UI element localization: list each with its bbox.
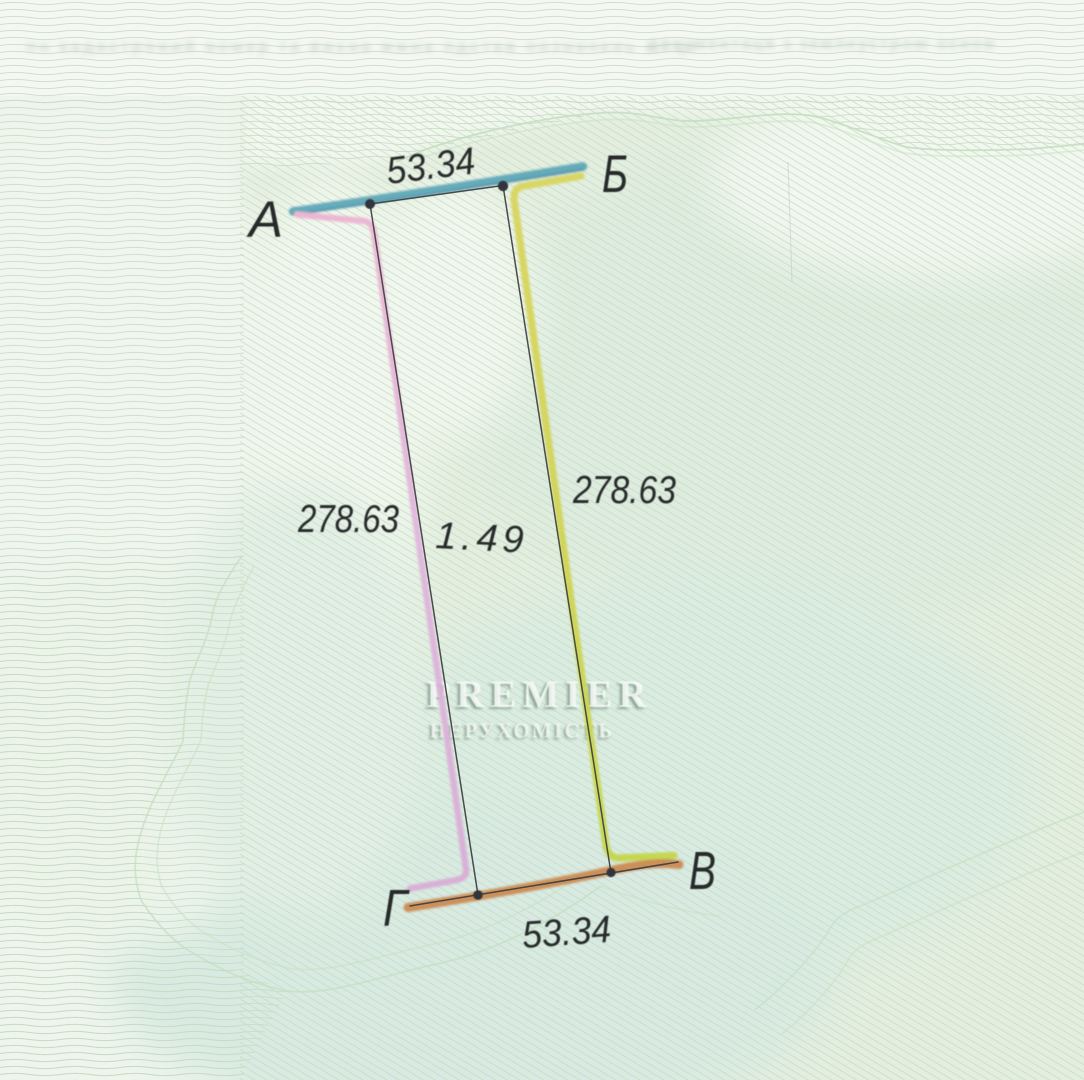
svg-text:278.63: 278.63 [297, 498, 399, 541]
svg-text:Г: Г [383, 880, 410, 938]
svg-text:документаця з землеустрою осно: документаця з землеустрою основ [648, 35, 996, 53]
svg-text:А: А [246, 191, 283, 248]
svg-text:1.49: 1.49 [435, 515, 525, 562]
svg-text:пн кадастровий номер та вихна: пн кадастровий номер та вихна мжна пдста… [26, 38, 699, 56]
svg-text:PREMIER: PREMIER [426, 673, 652, 716]
svg-text:53.34: 53.34 [521, 909, 613, 957]
svg-text:278.63: 278.63 [572, 469, 676, 512]
svg-text:В: В [689, 841, 716, 901]
svg-text:Б: Б [602, 145, 628, 204]
